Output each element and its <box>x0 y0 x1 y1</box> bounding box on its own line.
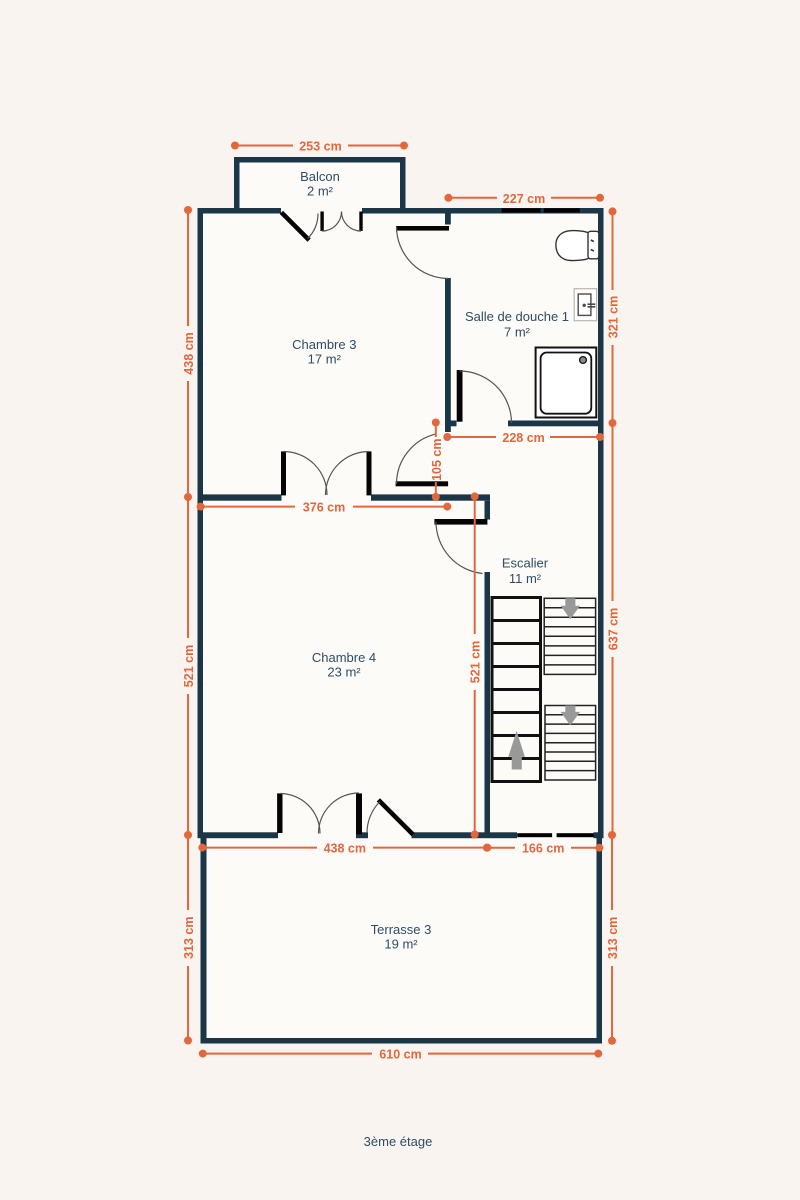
svg-text:23 m²: 23 m² <box>327 664 361 679</box>
svg-text:521 cm: 521 cm <box>469 641 483 683</box>
svg-text:Balcon: Balcon <box>300 169 340 184</box>
svg-text:637 cm: 637 cm <box>607 608 621 650</box>
svg-text:Chambre 4: Chambre 4 <box>312 650 376 665</box>
svg-text:321 cm: 321 cm <box>607 296 621 338</box>
svg-text:521 cm: 521 cm <box>182 645 196 687</box>
svg-text:610 cm: 610 cm <box>379 1048 421 1062</box>
svg-text:3ème étage: 3ème étage <box>364 1134 433 1149</box>
svg-text:313 cm: 313 cm <box>606 917 620 959</box>
svg-text:438 cm: 438 cm <box>182 332 196 374</box>
svg-text:438 cm: 438 cm <box>324 842 366 856</box>
svg-text:2 m²: 2 m² <box>307 184 334 199</box>
svg-text:19 m²: 19 m² <box>384 937 418 952</box>
svg-text:228 cm: 228 cm <box>502 431 544 445</box>
svg-text:313 cm: 313 cm <box>182 916 196 958</box>
svg-text:105 cm: 105 cm <box>430 438 444 480</box>
svg-text:227 cm: 227 cm <box>503 192 545 206</box>
svg-text:Chambre 3: Chambre 3 <box>292 337 356 352</box>
svg-text:Salle de douche 1: Salle de douche 1 <box>465 309 569 324</box>
svg-text:Terrasse 3: Terrasse 3 <box>371 922 432 937</box>
svg-text:376 cm: 376 cm <box>303 501 345 515</box>
svg-text:253 cm: 253 cm <box>299 140 341 154</box>
svg-text:Escalier: Escalier <box>502 556 549 571</box>
svg-text:166 cm: 166 cm <box>522 842 564 856</box>
svg-text:11 m²: 11 m² <box>509 571 542 586</box>
svg-text:7 m²: 7 m² <box>504 324 531 339</box>
svg-text:17 m²: 17 m² <box>308 352 342 367</box>
